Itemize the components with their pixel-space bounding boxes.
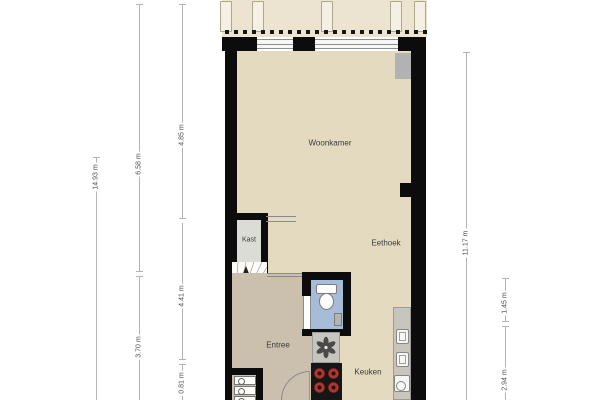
room-label-woonkamer: Woonkamer [309, 139, 352, 148]
washer-drum [238, 378, 245, 385]
wall-left-upper [225, 37, 237, 262]
sink-counter [312, 332, 340, 363]
room-label-entree: Entree [266, 341, 290, 350]
toilet-door [303, 296, 311, 329]
wall-top-segment [222, 37, 257, 51]
oven-icon [396, 329, 409, 344]
sink-basin [396, 381, 406, 391]
washer-icon [234, 396, 256, 400]
toilet-icon [319, 293, 334, 310]
wall-right [411, 37, 426, 400]
washer-drum [238, 388, 245, 395]
dimension-tick [179, 364, 186, 365]
chimney-block [395, 53, 411, 79]
dimension-label: 3.70 m [136, 334, 143, 359]
dimension-line [139, 4, 140, 272]
sink-symbol-icon [313, 333, 339, 362]
radiator-icon [334, 313, 342, 326]
microwave-icon [396, 352, 409, 367]
dimension-label: 6.58 m [136, 151, 143, 176]
dimension-label: 1.45 m [502, 290, 509, 315]
oven-door [399, 332, 406, 341]
floorplan-canvas: Woonkamer Eethoek Kast Entree Keuken 14.… [0, 0, 600, 400]
dimension-tick [136, 276, 143, 277]
column-post-icon [390, 1, 402, 32]
dimension-label: 2.94 m [502, 367, 509, 392]
dimension-label: 4.85 m [179, 122, 186, 147]
wall-top-segment [398, 37, 426, 51]
dimension-label: 11.17 m [463, 229, 470, 258]
dimension-tick [463, 52, 470, 53]
roofline-dashed-icon [225, 30, 427, 34]
dimension-line [182, 4, 183, 219]
door-opening-lines [266, 216, 296, 222]
column-post-icon [321, 1, 333, 32]
dimension-tick [502, 278, 509, 279]
window [315, 39, 398, 49]
column-post-icon [414, 1, 426, 32]
washer-icon [234, 386, 256, 395]
dimension-tick [502, 321, 509, 322]
window-glass-line [257, 44, 293, 45]
dimension-tick [179, 359, 186, 360]
window [257, 39, 293, 49]
dimension-tick [93, 157, 100, 158]
wall-left-lower [225, 262, 232, 400]
room-label-keuken: Keuken [354, 368, 381, 377]
dimension-label: 14.93 m [93, 162, 100, 191]
dimension-tick [136, 4, 143, 5]
dimension-tick [179, 218, 186, 219]
wall-utility-right [256, 368, 263, 400]
dimension-line [96, 157, 97, 400]
duct-shaft [302, 272, 311, 296]
room-label-kast: Kast [242, 237, 256, 244]
dimension-label: 0.81 m [179, 370, 186, 395]
dimension-tick [502, 326, 509, 327]
dimension-tick [179, 4, 186, 5]
dimension-tick [136, 271, 143, 272]
column-post-icon [252, 1, 264, 32]
stove-burner-icon [328, 382, 339, 393]
kitchen-sink-icon [394, 375, 410, 392]
room-label-eethoek: Eethoek [371, 239, 400, 248]
room-divider-lines [267, 273, 303, 277]
wall-toilet-right [343, 272, 351, 336]
washer-icon [234, 376, 256, 385]
column-post-icon [220, 1, 232, 32]
dimension-line [466, 52, 467, 400]
stove-burner-icon [328, 368, 339, 379]
microwave-door [399, 355, 406, 364]
stove-burner-icon [314, 368, 325, 379]
window-glass-line [315, 44, 398, 45]
wall-top-segment [293, 37, 315, 51]
stove-burner-icon [314, 382, 325, 393]
dimension-label: 4.41 m [179, 283, 186, 308]
wall-stub-right [400, 183, 426, 197]
entry-door-leaf [309, 371, 310, 400]
